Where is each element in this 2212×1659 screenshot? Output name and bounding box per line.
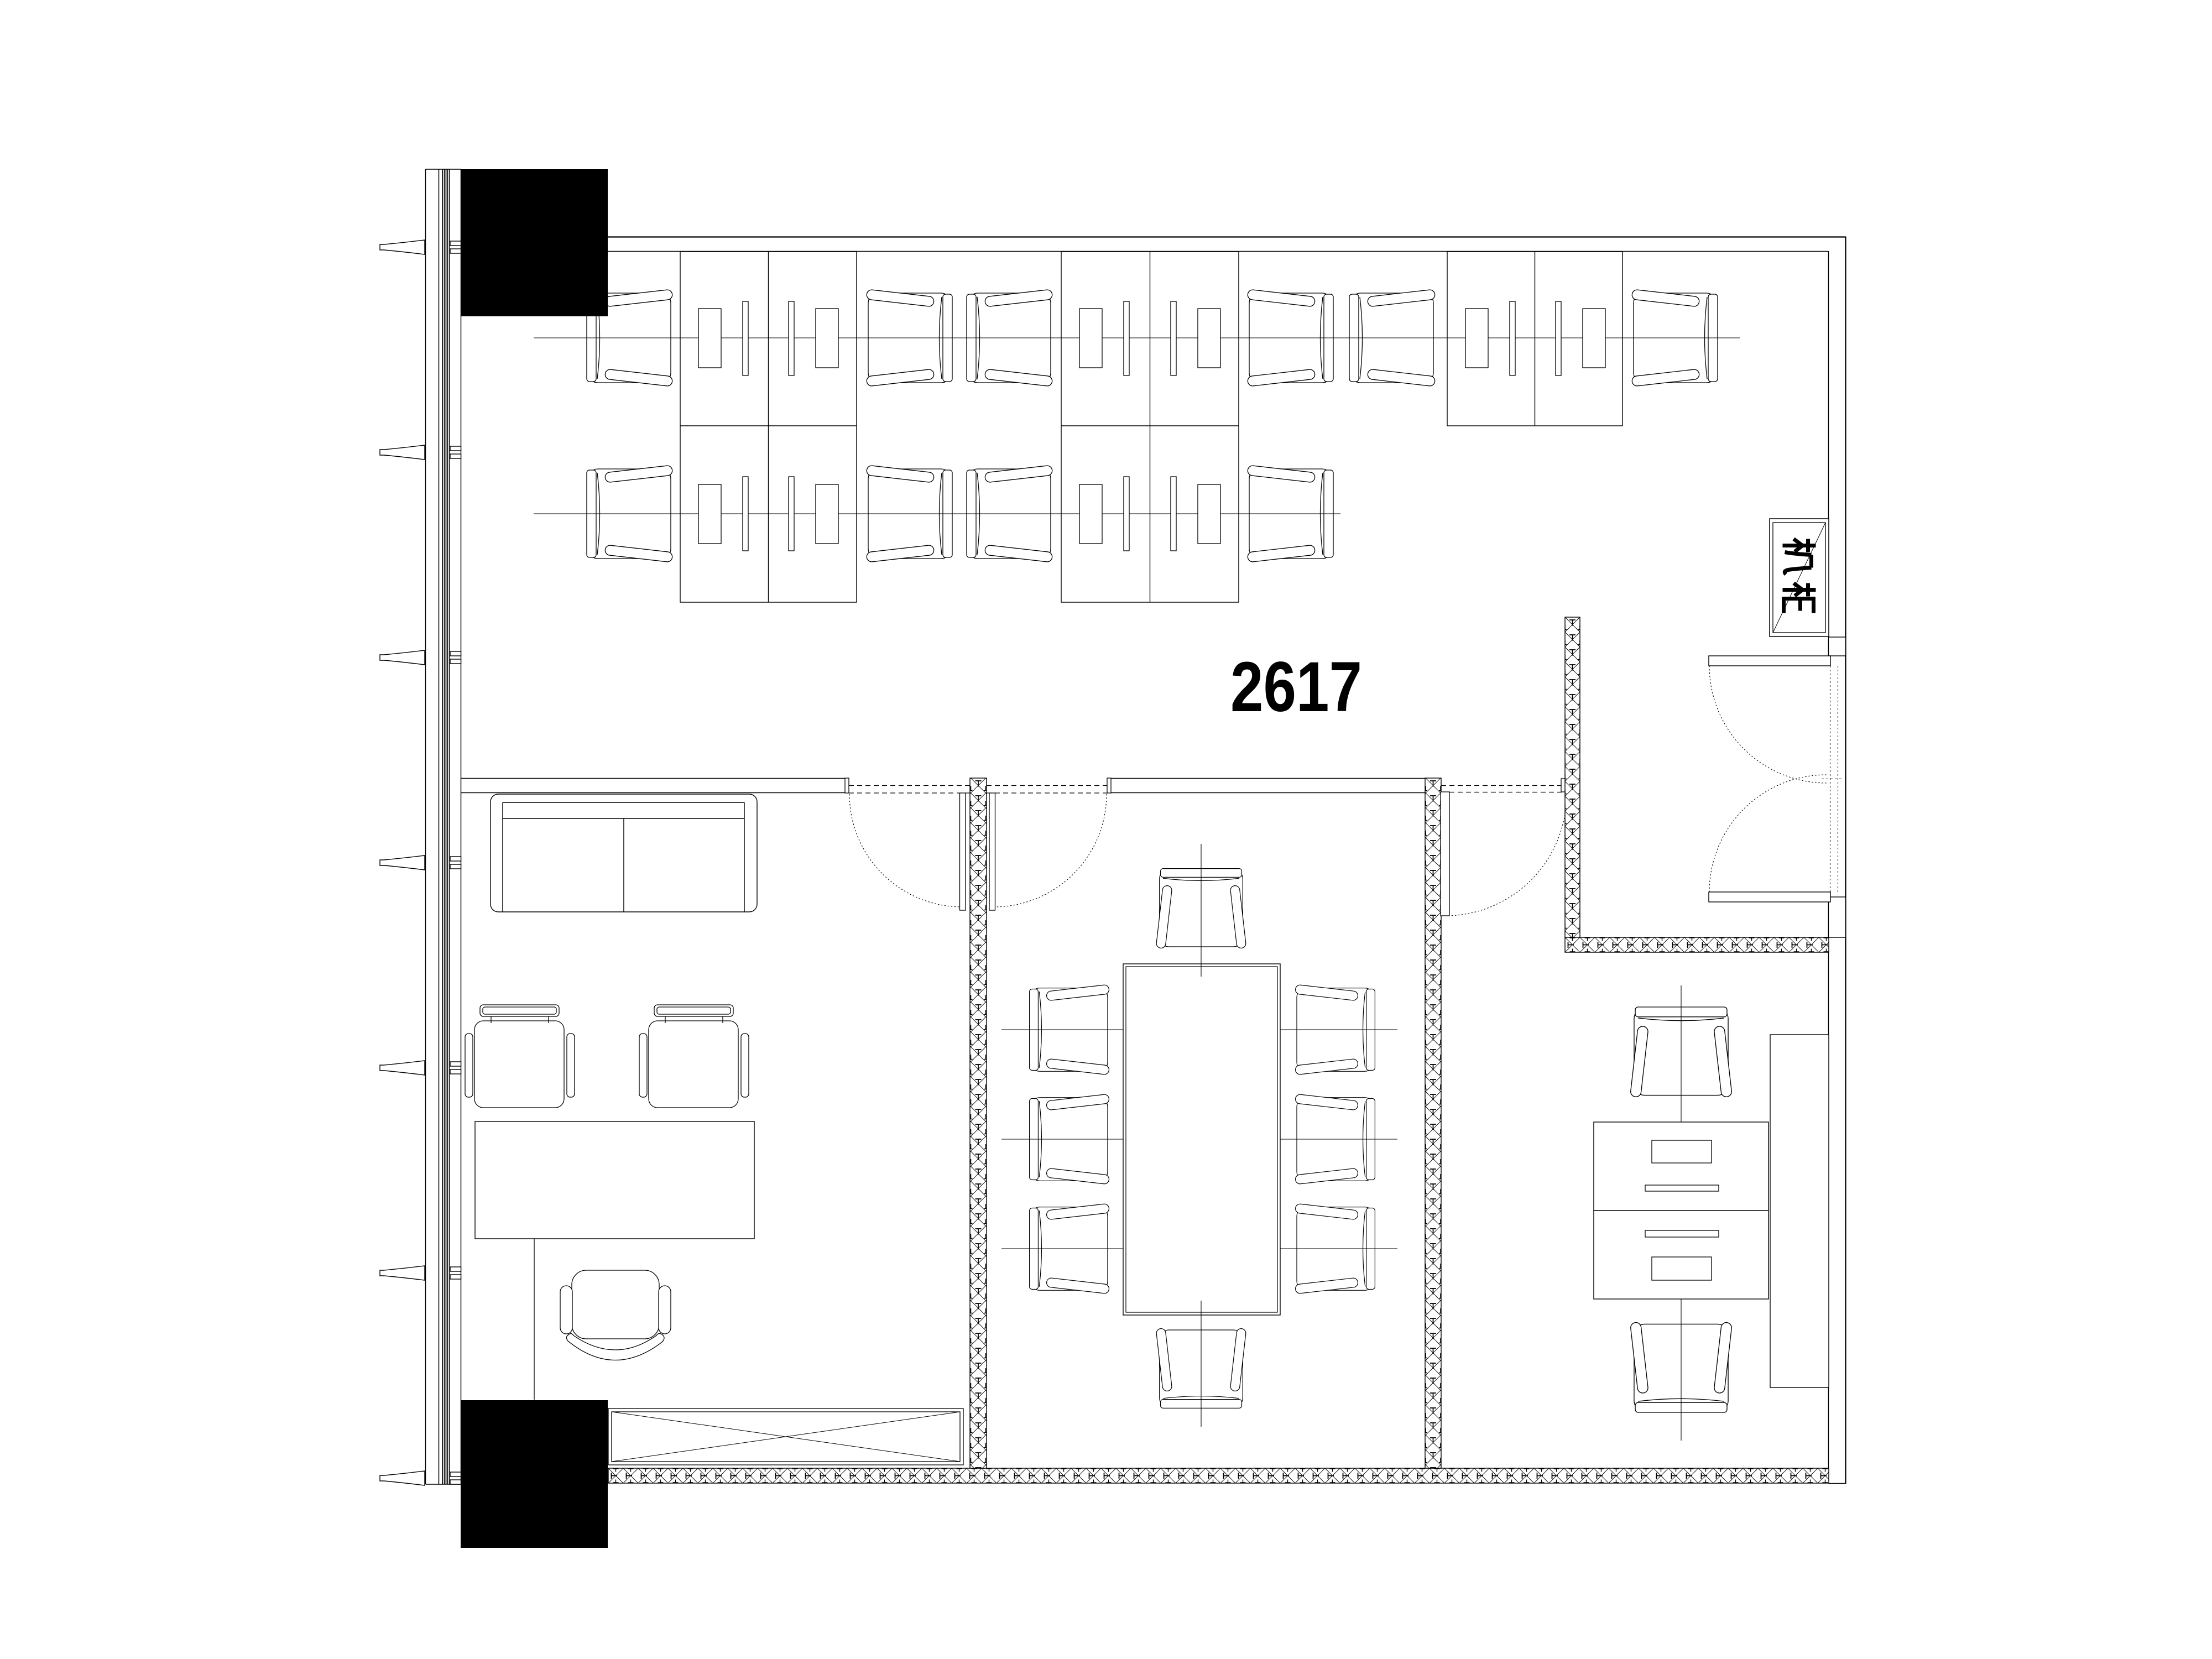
svg-text:2617: 2617 (1230, 648, 1362, 727)
